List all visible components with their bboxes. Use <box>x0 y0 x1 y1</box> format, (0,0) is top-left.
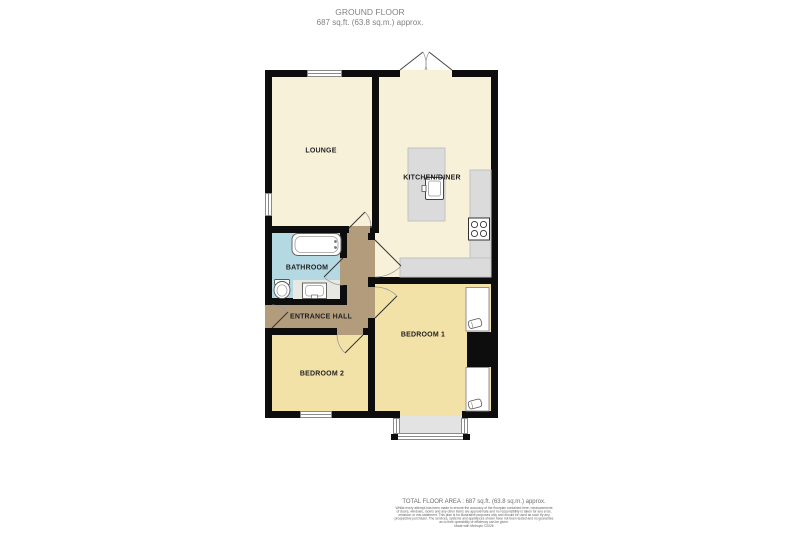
wall <box>370 226 379 233</box>
wall <box>368 284 375 287</box>
wall <box>368 318 375 328</box>
floorplan-page: GROUND FLOOR 687 sq.ft. (63.8 sq.m.) app… <box>0 0 800 533</box>
wall <box>265 70 498 77</box>
wall <box>265 226 349 233</box>
floorplan: LOUNGE KITCHEN/DINER BATHROOM ENTRANCE H… <box>265 50 500 445</box>
window <box>300 411 332 418</box>
disclaimer: Whilst every attempt has been made to en… <box>354 507 594 531</box>
front-door-opening <box>265 305 272 328</box>
total-floor-area: TOTAL FLOOR AREA : 687 sq.ft. (63.8 sq.m… <box>344 499 604 505</box>
wall <box>340 226 347 258</box>
wall <box>265 298 347 305</box>
room-label-bedroom2: BEDROOM 2 <box>300 371 344 378</box>
bay-window <box>400 416 461 434</box>
room-label-lounge: LOUNGE <box>305 148 336 155</box>
french-door-opening <box>400 70 452 77</box>
wall <box>265 70 272 418</box>
room-lounge <box>272 77 372 233</box>
wall <box>368 328 375 411</box>
bay-corner-post <box>391 434 398 440</box>
bay-window-frame <box>393 433 468 440</box>
floor-title: GROUND FLOOR <box>250 8 490 18</box>
window <box>307 70 342 77</box>
wall <box>368 277 498 284</box>
french-doors <box>400 52 452 70</box>
bay-corner-post <box>463 434 470 440</box>
chimney-breast <box>467 332 491 367</box>
plan-header: GROUND FLOOR 687 sq.ft. (63.8 sq.m.) app… <box>250 8 490 27</box>
wall <box>265 328 337 335</box>
wall <box>368 233 375 240</box>
floor-area-subtitle: 687 sq.ft. (63.8 sq.m.) approx. <box>250 18 490 28</box>
room-label-hall: ENTRANCE HALL <box>290 314 352 321</box>
wall <box>372 70 379 233</box>
wall <box>491 70 498 418</box>
metropix-credit: Made with Metropix ©2026 <box>354 525 594 529</box>
room-label-bedroom1: BEDROOM 1 <box>401 332 445 339</box>
window <box>265 193 272 216</box>
room-label-bathroom: BATHROOM <box>286 265 328 272</box>
room-label-kitchen: KITCHEN/DINER <box>403 175 460 182</box>
